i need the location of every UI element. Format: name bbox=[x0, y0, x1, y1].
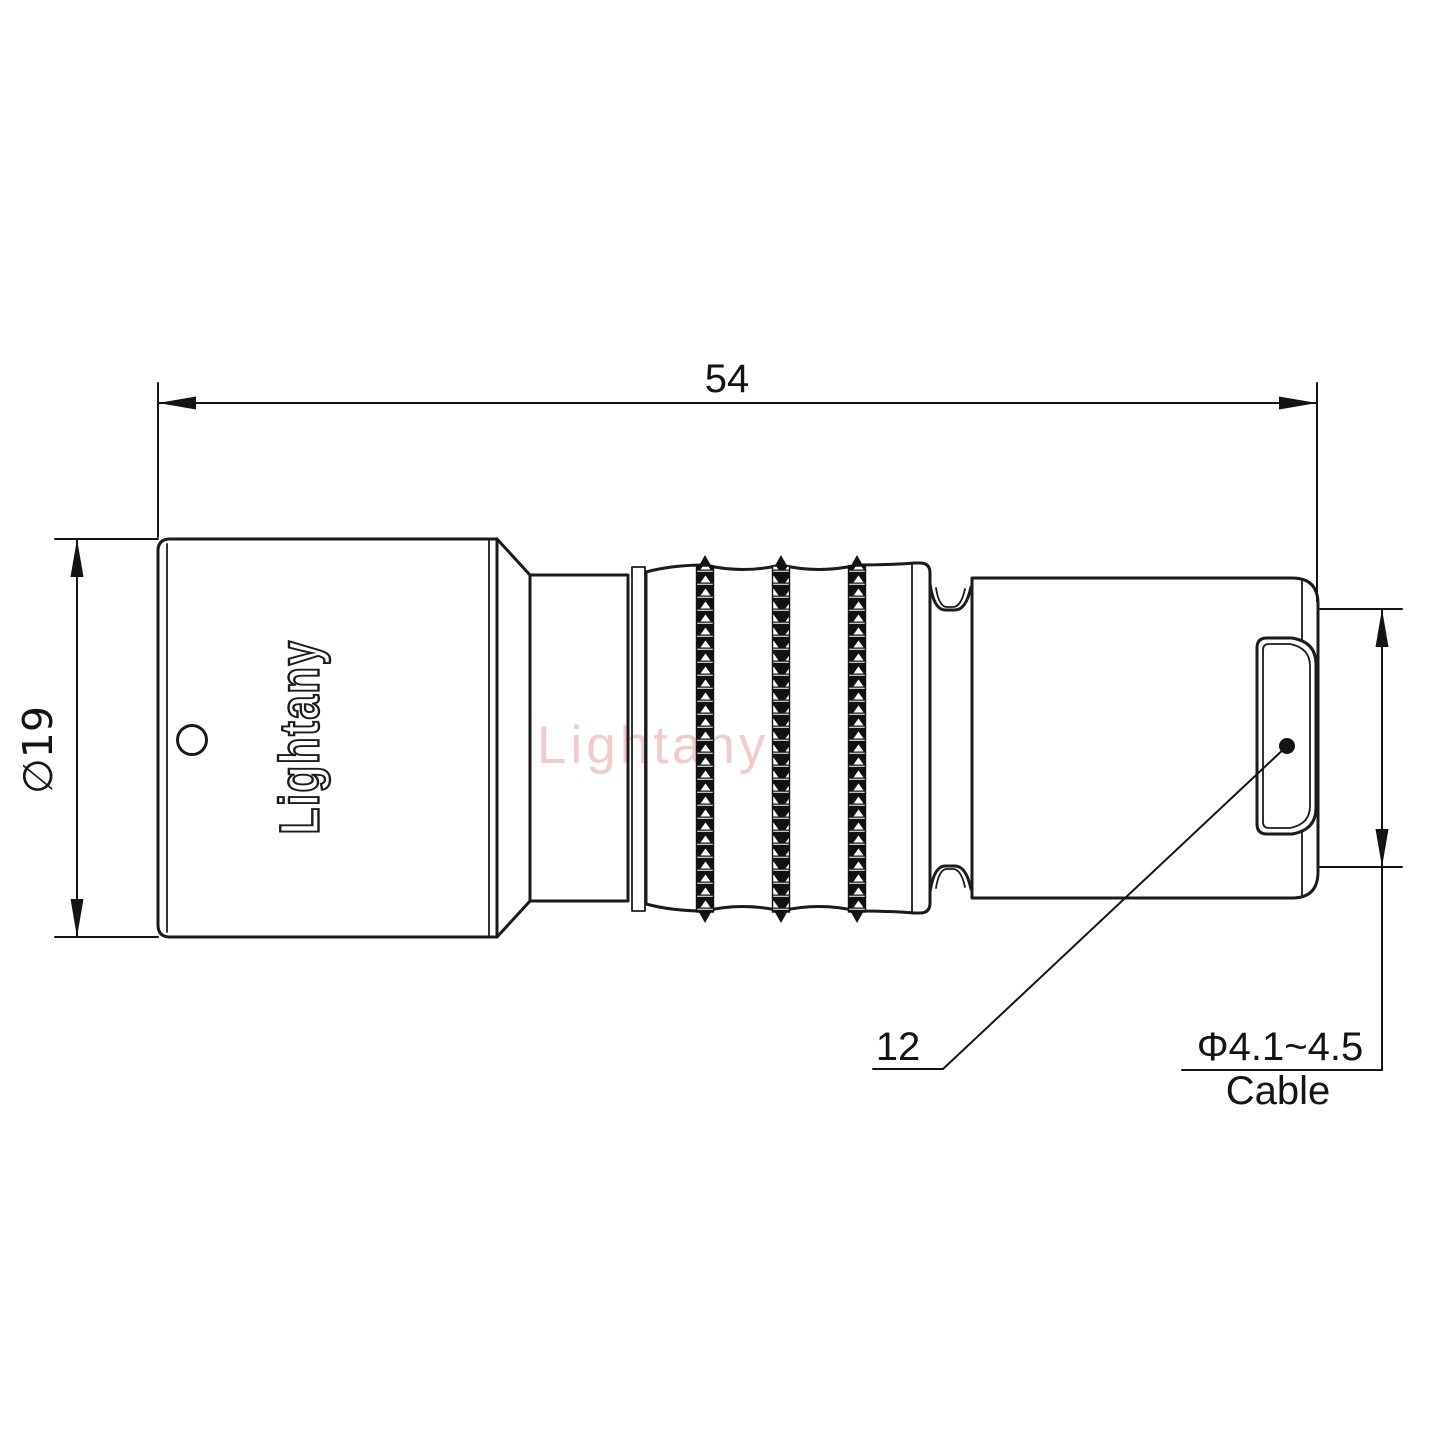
dimension-value-12: 12 bbox=[876, 1025, 921, 1069]
cable-range-value: Φ4.1~4.5 bbox=[1197, 1025, 1363, 1069]
watermark-text: Lightany bbox=[537, 716, 769, 775]
knurl-band bbox=[773, 555, 790, 923]
dimension-value-dia19: ∅19 bbox=[14, 706, 62, 794]
leader-dot bbox=[1279, 738, 1295, 754]
dimension-value-54: 54 bbox=[705, 357, 750, 401]
knurl-band bbox=[697, 555, 714, 923]
cable-label: Cable bbox=[1226, 1069, 1331, 1113]
shell-engraving-text: Lightany bbox=[268, 640, 331, 835]
technical-drawing-canvas: Lightany bbox=[0, 0, 1440, 1440]
connector-dimension-drawing: Lightany bbox=[0, 0, 1440, 1440]
knurl-band bbox=[849, 555, 866, 923]
